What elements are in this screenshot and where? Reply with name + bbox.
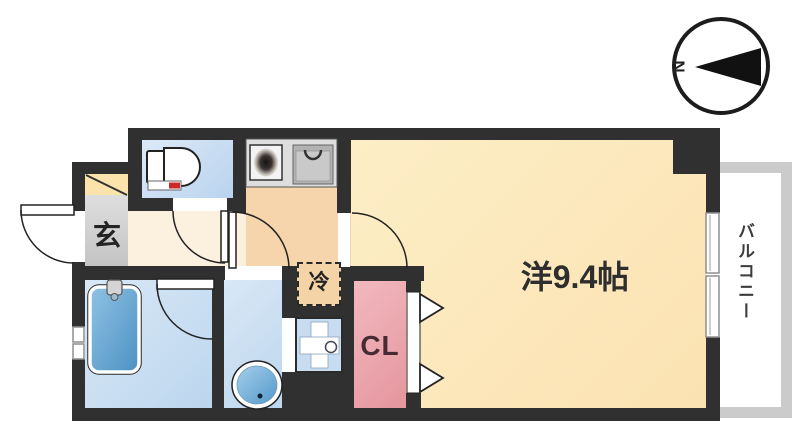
washbasin-drain — [258, 394, 263, 399]
bath-faucet-icon — [107, 280, 122, 295]
washroom-door-arc — [232, 212, 289, 269]
entrance-door-leaf — [21, 205, 74, 215]
toilet-door-arc — [173, 211, 225, 263]
toilet-bowl-icon — [164, 148, 200, 186]
toilet-door-leaf — [221, 211, 228, 262]
bathroom-door-arc — [157, 284, 212, 339]
washing-machine-drain — [326, 342, 337, 353]
bath-faucet-knob — [111, 294, 118, 301]
balcony-window-pane — [706, 276, 719, 337]
bathroom-window-pane — [73, 344, 84, 359]
washlet-red-control — [169, 183, 180, 189]
bathroom-door-leaf — [157, 279, 214, 289]
kitchen-sink-inner — [296, 151, 330, 181]
entrance-door-arc — [21, 210, 74, 263]
stove-burner-icon — [254, 149, 278, 177]
closet-folding-door-icon — [420, 294, 443, 322]
closet-folding-door-icon — [420, 364, 443, 392]
entrance-label: 玄 — [88, 222, 126, 250]
compass-north-label: N — [671, 60, 688, 72]
shoe-cabinet-diagonal — [86, 175, 127, 195]
refrigerator-label: 冷 — [297, 272, 341, 293]
bathroom-window-pane — [73, 327, 84, 342]
balcony-label: バルコニー — [736, 222, 753, 372]
balcony-window-pane — [706, 213, 719, 273]
closet-label: CL — [352, 332, 408, 360]
closet-door-strip — [407, 292, 420, 393]
washbasin-icon — [237, 366, 277, 404]
floorplan-canvas: 玄 冷 CL 洋9.4帖 バルコニー N — [0, 0, 800, 432]
toilet-tank-icon — [147, 151, 165, 183]
main-room-door-arc — [352, 213, 407, 268]
washroom-door-leaf — [229, 212, 236, 268]
main-room-label: 洋9.4帖 — [470, 261, 680, 293]
